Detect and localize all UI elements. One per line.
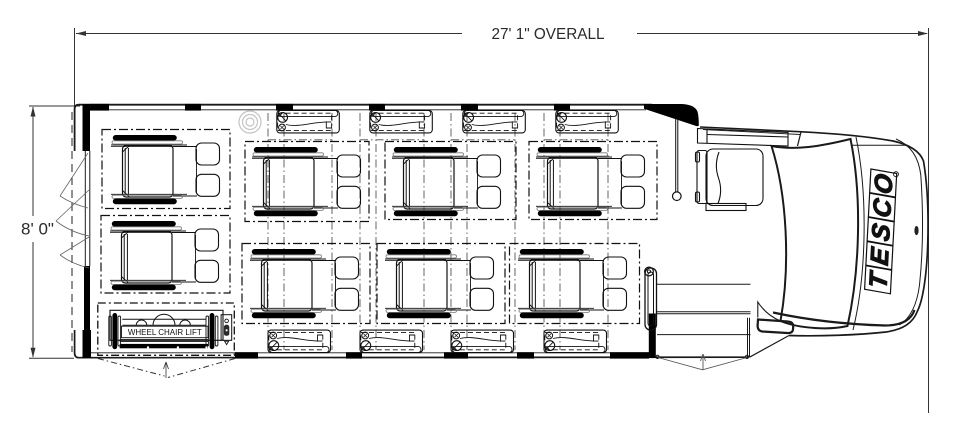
svg-text:WHEEL CHAIR LIFT: WHEEL CHAIR LIFT: [128, 328, 202, 337]
svg-text:T: T: [865, 268, 894, 291]
svg-text:E: E: [866, 244, 895, 267]
svg-text:8' 0": 8' 0": [21, 220, 54, 239]
svg-text:C: C: [868, 196, 897, 220]
svg-text:S: S: [867, 221, 896, 243]
svg-text:27' 1" OVERALL: 27' 1" OVERALL: [492, 26, 605, 43]
